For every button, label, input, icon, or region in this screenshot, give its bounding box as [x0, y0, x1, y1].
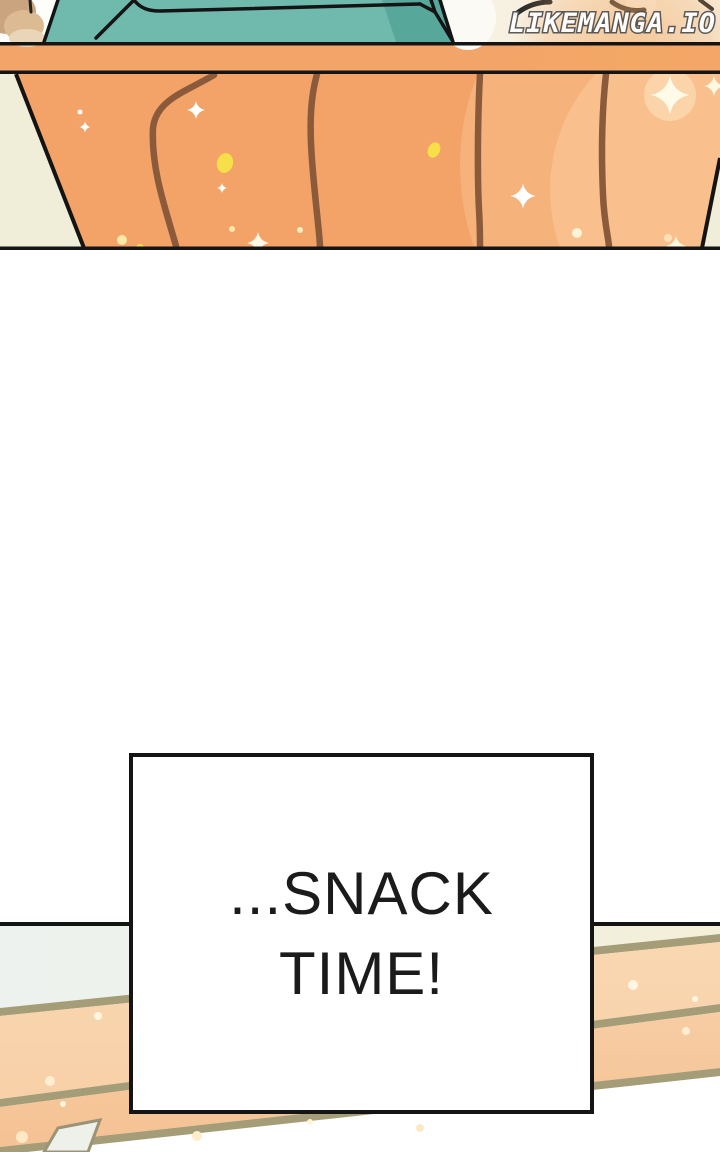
rim-outline-top: [0, 42, 720, 46]
caption-line-2: TIME!: [279, 934, 444, 1014]
comic-page: LIKEMANGA.IO: [0, 0, 720, 1152]
caption-line-1: ...SNACK: [229, 854, 494, 934]
site-watermark-text: LIKEMANGA.IO: [509, 8, 716, 39]
rim-outline-bottom: [0, 71, 720, 75]
lunchbox-lid: [44, 0, 453, 42]
panel-outline-bottom: [0, 247, 720, 251]
site-watermark: LIKEMANGA.IO: [484, 4, 720, 42]
caption-box: ...SNACK TIME!: [129, 753, 594, 1114]
